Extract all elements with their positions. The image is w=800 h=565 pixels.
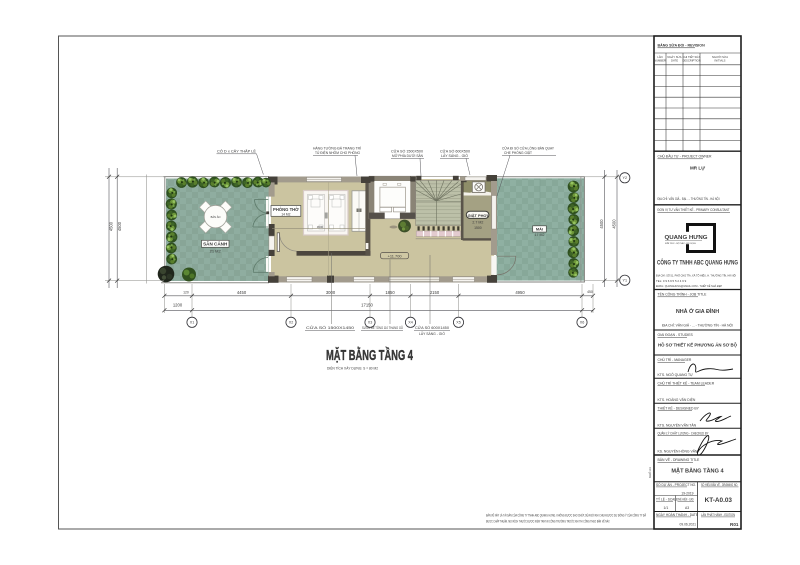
svg-text:ĐƯỢC CHẤP THUẬN. MỌI KÍCH THƯỚ: ĐƯỢC CHẤP THUẬN. MỌI KÍCH THƯỚC ĐƯỢC KIỂ… <box>486 519 610 524</box>
svg-text:R01: R01 <box>730 522 739 527</box>
svg-text:4500: 4500 <box>109 221 114 231</box>
svg-text:17150: 17150 <box>361 303 373 308</box>
svg-text:A3: A3 <box>685 506 689 510</box>
svg-text:THIẾT KẾ - DESIGNED BY: THIẾT KẾ - DESIGNED BY <box>658 405 700 410</box>
svg-text:HỒ SƠ THIẾT KẾ PHƯƠNG ÁN SƠ BỘ: HỒ SƠ THIẾT KẾ PHƯƠNG ÁN SƠ BỘ <box>658 341 737 348</box>
svg-text:BẢN VẼ NÀY LÀ TÀI SẢN CỦA CÔNG: BẢN VẼ NÀY LÀ TÀI SẢN CỦA CÔNG TY TNHH A… <box>486 513 646 518</box>
svg-text:SÂN CẢNH: SÂN CẢNH <box>203 241 228 247</box>
svg-text:3000: 3000 <box>326 290 336 295</box>
svg-text:GIAI ĐOẠN - STUDIES: GIAI ĐOẠN - STUDIES <box>658 333 694 337</box>
svg-text:EMAIL: QUANGHUNG@GMAIL.COM - T: EMAIL: QUANGHUNG@GMAIL.COM - THIẾT KẾ NH… <box>656 283 722 288</box>
svg-text:BÀN ĂN: BÀN ĂN <box>211 215 221 219</box>
svg-text:LẦN: LẦN <box>657 55 662 59</box>
svg-text:KTS. NGÔ QUANG TỰ: KTS. NGÔ QUANG TỰ <box>658 372 694 377</box>
svg-text:ĐỊA CHỈ: VÂN GIẢ - ... - THƯỜN: ĐỊA CHỈ: VÂN GIẢ - ... - THƯỜNG TÍN - HÀ… <box>662 323 733 328</box>
svg-text:450: 450 <box>587 290 593 294</box>
svg-text:TÊN CÔNG TRÌNH - JOB TITLE: TÊN CÔNG TRÌNH - JOB TITLE <box>658 292 708 297</box>
svg-text:ĐỊA CHỈ: VÂN GIẢ - ĐẠI... - TH: ĐỊA CHỈ: VÂN GIẢ - ĐẠI... - THƯỜNG TÍN -… <box>658 196 720 201</box>
svg-text:4450: 4450 <box>237 290 247 295</box>
svg-text:LẤY SÁNG - GIÓ: LẤY SÁNG - GIÓ <box>441 153 468 158</box>
svg-text:CÔNG TY TNHH ABC QUANG HƯNG: CÔNG TY TNHH ABC QUANG HƯNG <box>657 259 738 267</box>
svg-text:X6: X6 <box>580 321 585 325</box>
svg-text:DESCRIPTION: DESCRIPTION <box>682 58 700 62</box>
svg-text:LẦN PHÁT HÀNH - EDITION: LẦN PHÁT HÀNH - EDITION <box>701 513 736 517</box>
svg-text:14 M2: 14 M2 <box>281 213 290 217</box>
svg-text:21 M2: 21 M2 <box>210 248 222 253</box>
svg-text:TỶ LỆ - SCALE: TỶ LỆ - SCALE <box>656 496 678 501</box>
svg-text:19-2019: 19-2019 <box>681 492 693 496</box>
svg-text:PHÒNG THỜ: PHÒNG THỜ <box>273 207 299 212</box>
svg-text:QUANG HƯNG: QUANG HƯNG <box>665 235 708 241</box>
svg-text:4500: 4500 <box>317 225 324 229</box>
svg-text:2.7 M2: 2.7 M2 <box>472 221 483 225</box>
svg-text:MẶT BẰNG TẦNG 4: MẶT BẰNG TẦNG 4 <box>671 467 724 475</box>
svg-text:SƯỜN BÊ TÔNG 110 THANG GỖ: SƯỜN BÊ TÔNG 110 THANG GỖ <box>362 325 403 330</box>
svg-text:4500: 4500 <box>117 221 122 231</box>
svg-text:4950: 4950 <box>515 290 525 295</box>
svg-text:THỂ HIỆN - CAD: THỂ HIỆN - CAD <box>678 496 694 501</box>
svg-text:GIẶT PHƠI: GIẶT PHƠI <box>468 213 488 218</box>
svg-text:QUẢN LÝ CHẤT LƯỢNG - CHECKED B: QUẢN LÝ CHẤT LƯỢNG - CHECKED BY <box>658 430 710 435</box>
svg-text:CỎ D x CÂY THẤP LỀ: CỎ D x CÂY THẤP LỀ <box>217 149 257 154</box>
svg-text:KT-A0.03: KT-A0.03 <box>705 497 733 504</box>
svg-text:LẤY SÁNG - GIÓ: LẤY SÁNG - GIÓ <box>419 331 445 336</box>
svg-text:MỞ PHÍA DƯỚI SẢN: MỞ PHÍA DƯỚI SẢN <box>392 153 423 158</box>
svg-text:09.06.2021: 09.06.2021 <box>679 522 696 526</box>
svg-text:ĐỊA CHỈ: SỐ 51, PHỐ CHỢ TÍA, X: ĐỊA CHỈ: SỐ 51, PHỐ CHỢ TÍA, XÃ TÔ HIỆU,… <box>656 273 736 278</box>
svg-text:1850: 1850 <box>385 290 395 295</box>
svg-text:NGÀY HOÀN THÀNH - DATE: NGÀY HOÀN THÀNH - DATE <box>656 513 698 517</box>
svg-text:2150: 2150 <box>430 290 440 295</box>
svg-text:KTS. HOÀNG VĂN DIỆN: KTS. HOÀNG VĂN DIỆN <box>658 397 696 402</box>
svg-text:X4: X4 <box>408 321 413 325</box>
svg-text:KTS. NGUYỄN VĂN TÂN: KTS. NGUYỄN VĂN TÂN <box>658 422 697 427</box>
svg-text:1200: 1200 <box>173 303 183 308</box>
svg-text:CỬA SỔ 1500X1450: CỬA SỔ 1500X1450 <box>306 325 354 330</box>
svg-text:Y1: Y1 <box>623 279 628 283</box>
svg-text:1500: 1500 <box>474 226 482 230</box>
svg-text:SỐ HIỆU BẢN VẼ - DRAWING NO.: SỐ HIỆU BẢN VẼ - DRAWING NO. <box>701 482 738 487</box>
svg-text:DIỆN TÍCH XÂY DỰNG: S = 80 M2: DIỆN TÍCH XÂY DỰNG: S = 80 M2 <box>327 366 378 371</box>
svg-text:KHỔ A3: KHỔ A3 <box>647 467 652 478</box>
svg-text:DATE: DATE <box>671 58 678 62</box>
svg-text:Y2: Y2 <box>623 176 628 180</box>
svg-text:NHÀ Ở GIA ĐÌNH: NHÀ Ở GIA ĐÌNH <box>676 307 719 315</box>
svg-text:4500: 4500 <box>599 219 604 229</box>
svg-text:SỐ DỰ ÁN - PROJECT NO.: SỐ DỰ ÁN - PROJECT NO. <box>656 482 696 487</box>
svg-text:KS. NGUYỄN HỒNG VĂN: KS. NGUYỄN HỒNG VĂN <box>658 448 698 453</box>
svg-text:CỬA SỔ 600X500: CỬA SỔ 600X500 <box>440 148 470 153</box>
svg-text:X2: X2 <box>289 321 294 325</box>
svg-text:X1: X1 <box>190 321 195 325</box>
svg-text:4500: 4500 <box>611 219 616 229</box>
svg-text:120: 120 <box>183 291 189 295</box>
svg-text:CỬA SỔ 1500X500: CỬA SỔ 1500X500 <box>391 148 423 153</box>
svg-text:NUMBER: NUMBER <box>654 58 666 62</box>
svg-text:CHỦ ĐẦU TƯ - PROJECT OWNER: CHỦ ĐẦU TƯ - PROJECT OWNER <box>658 154 713 159</box>
svg-text:X5: X5 <box>456 321 461 325</box>
svg-text:17 M2: 17 M2 <box>535 233 545 237</box>
svg-text:TEL: 0 9 6 9 5 5 2 4 6 9: TEL: 0 9 6 9 5 5 2 4 6 9 <box>656 279 687 283</box>
svg-text:ĐƠN VỊ TƯ VẤN THIẾT KẾ - PRIMA: ĐƠN VỊ TƯ VẤN THIẾT KẾ - PRIMARY CONSULT… <box>658 207 730 212</box>
svg-text:CỬA SỔ 600X1450: CỬA SỔ 600X1450 <box>415 325 449 330</box>
svg-text:MR LỰ: MR LỰ <box>690 166 705 171</box>
svg-text:MẶT BẰNG TẦNG 4: MẶT BẰNG TẦNG 4 <box>326 346 413 364</box>
svg-text:KIẾN TRÚC - NỘI THẤT - XÂY DỰN: KIẾN TRÚC - NỘI THẤT - XÂY DỰNG <box>665 242 696 245</box>
svg-text:BẢNG SỬA ĐỔI - REVISION: BẢNG SỬA ĐỔI - REVISION <box>658 43 706 48</box>
svg-text:CHỦ TRÌ THIẾT KẾ - TEAM LEADER: CHỦ TRÌ THIẾT KẾ - TEAM LEADER <box>658 380 715 385</box>
svg-text:HÀNG TƯỜNG ĐÁ TRANG TRÍ: HÀNG TƯỜNG ĐÁ TRANG TRÍ <box>313 145 361 150</box>
svg-text:MÁI: MÁI <box>536 227 543 232</box>
svg-text:CỬA ĐI SỐ CỬA LỒNG BÀN QUAY: CỬA ĐI SỐ CỬA LỒNG BÀN QUAY <box>502 145 555 150</box>
svg-text:X3: X3 <box>368 321 373 325</box>
svg-text:+11.700: +11.700 <box>388 253 403 258</box>
svg-text:CHỦ TRÌ - MANAGER: CHỦ TRÌ - MANAGER <box>658 357 692 362</box>
svg-text:INITIALS: INITIALS <box>715 58 726 62</box>
svg-text:BẢN VẼ - DRAWING TITLE: BẢN VẼ - DRAWING TITLE <box>658 457 701 462</box>
svg-text:TỦ ĐIỆN NHÔM CHO PHÒNG: TỦ ĐIỆN NHÔM CHO PHÒNG <box>315 150 360 155</box>
svg-text:1/1: 1/1 <box>664 506 669 510</box>
svg-text:CHE PHÒNG GIẶT: CHE PHÒNG GIẶT <box>504 150 533 155</box>
